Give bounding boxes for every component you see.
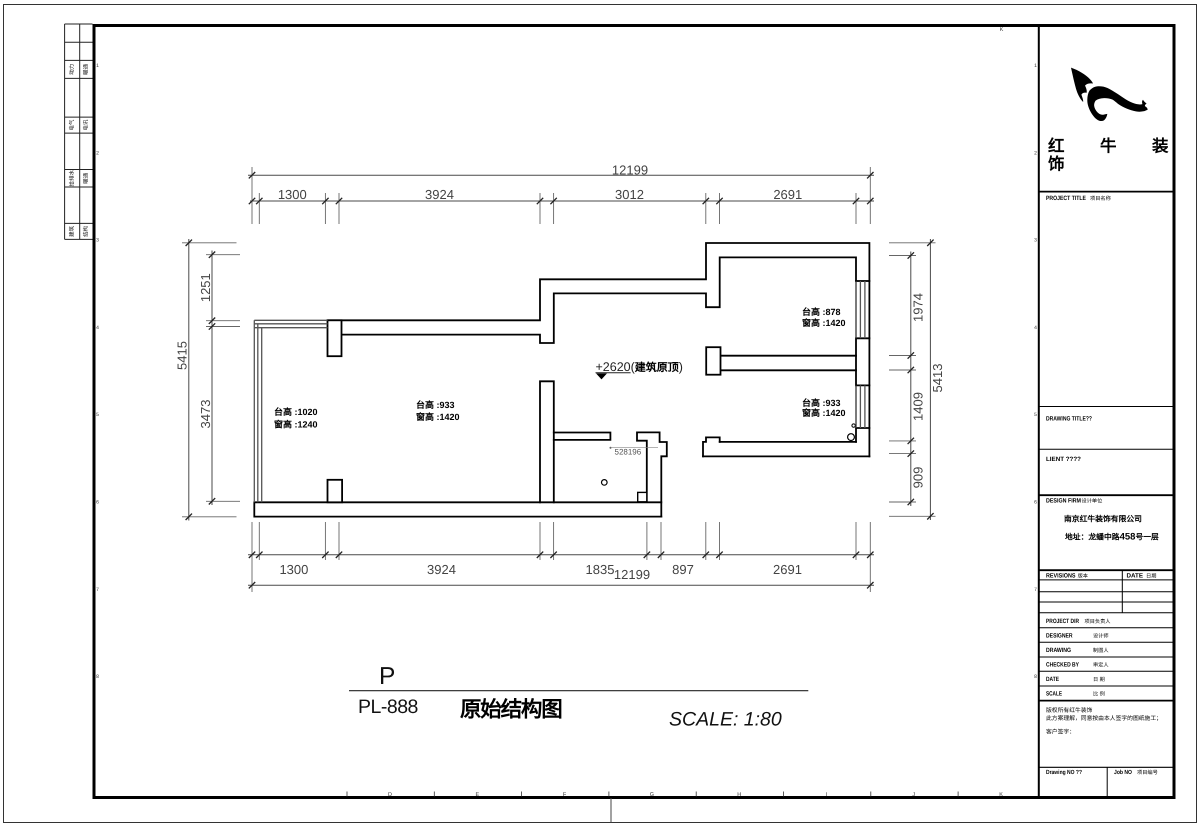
svg-text:DESIGN FIRM: DESIGN FIRM <box>1046 498 1081 505</box>
svg-text:1409: 1409 <box>911 392 926 421</box>
svg-text:饰: 饰 <box>1048 155 1065 174</box>
svg-text:建筑: 建筑 <box>69 225 76 237</box>
svg-text:DESIGNER: DESIGNER <box>1046 632 1073 639</box>
svg-text:台高 :878: 台高 :878 <box>802 307 841 317</box>
svg-text:J: J <box>912 792 915 798</box>
svg-text:红牛装: 红牛装 <box>1048 137 1200 156</box>
svg-text:G: G <box>650 792 654 798</box>
svg-text:DATE: DATE <box>1046 676 1059 683</box>
svg-text:LIENT ????: LIENT ???? <box>1046 456 1081 463</box>
svg-text:比 例: 比 例 <box>1093 691 1105 698</box>
svg-text:5: 5 <box>1034 412 1037 418</box>
svg-text:项目名称: 项目名称 <box>1090 195 1111 202</box>
svg-text:台高 :933: 台高 :933 <box>802 398 841 408</box>
svg-text:电气: 电气 <box>69 119 76 131</box>
svg-text:4: 4 <box>96 325 99 331</box>
svg-text:3924: 3924 <box>427 562 456 577</box>
svg-text:3: 3 <box>1034 238 1037 244</box>
svg-text:客户签字：: 客户签字： <box>1046 729 1075 736</box>
svg-text:设计单位: 设计单位 <box>1082 498 1103 505</box>
svg-text:版本: 版本 <box>1078 572 1088 579</box>
svg-text:528196: 528196 <box>615 448 642 457</box>
svg-text:5413: 5413 <box>930 364 945 393</box>
svg-text:暖通: 暖通 <box>83 63 90 75</box>
svg-text:1: 1 <box>1034 63 1037 69</box>
svg-text:6: 6 <box>96 500 99 506</box>
svg-text:2691: 2691 <box>773 562 802 577</box>
svg-text:D: D <box>388 792 392 798</box>
svg-text:12199: 12199 <box>612 162 648 177</box>
svg-text:12199: 12199 <box>614 567 650 582</box>
svg-text:5415: 5415 <box>175 341 190 370</box>
svg-text:5: 5 <box>96 412 99 418</box>
svg-text:结构: 结构 <box>83 225 90 237</box>
svg-text:项目负责人: 项目负责人 <box>1085 618 1111 625</box>
svg-text:3012: 3012 <box>615 187 644 202</box>
svg-text:动力: 动力 <box>69 64 76 75</box>
svg-text:电讯: 电讯 <box>83 119 90 131</box>
svg-text:版权所有红牛装饰: 版权所有红牛装饰 <box>1046 707 1093 714</box>
svg-text:K: K <box>999 792 1003 798</box>
svg-text:E: E <box>475 792 479 798</box>
svg-text:原始结构图: 原始结构图 <box>460 698 562 722</box>
svg-text:日期: 日期 <box>1146 572 1156 579</box>
svg-text:窗高 :1420: 窗高 :1420 <box>802 318 846 328</box>
svg-text:2: 2 <box>1034 150 1037 156</box>
svg-text:2691: 2691 <box>773 187 802 202</box>
svg-text:SCALE: SCALE <box>1046 691 1062 698</box>
svg-text:DATE: DATE <box>1127 572 1144 579</box>
svg-text:SCALE: 1:80: SCALE: 1:80 <box>669 709 782 731</box>
svg-text:3: 3 <box>96 238 99 244</box>
svg-text:1835: 1835 <box>586 562 615 577</box>
svg-text:审定人: 审定人 <box>1093 662 1109 669</box>
svg-text:Drawing NO ??: Drawing NO ?? <box>1046 769 1082 776</box>
svg-text:此方案理解，同意按由本人签字的图纸施工；: 此方案理解，同意按由本人签字的图纸施工； <box>1046 715 1162 722</box>
svg-text:K: K <box>1000 27 1004 33</box>
svg-text:897: 897 <box>672 562 694 577</box>
svg-text:REVISIONS: REVISIONS <box>1046 572 1076 579</box>
svg-text:给排水: 给排水 <box>69 169 76 186</box>
svg-text:1: 1 <box>96 63 99 69</box>
svg-text:1300: 1300 <box>278 187 307 202</box>
svg-text:CHECKED BY: CHECKED BY <box>1046 662 1080 669</box>
svg-text:8: 8 <box>96 674 99 680</box>
svg-text:909: 909 <box>911 467 926 489</box>
svg-text:PL-888: PL-888 <box>358 696 418 718</box>
svg-text:DRAWING TITLE??: DRAWING TITLE?? <box>1046 416 1092 423</box>
svg-text:8: 8 <box>1034 674 1037 680</box>
svg-text:4: 4 <box>1034 325 1037 331</box>
svg-text:3924: 3924 <box>425 187 454 202</box>
svg-text:1251: 1251 <box>198 273 213 302</box>
svg-text:暖通: 暖通 <box>83 172 90 184</box>
svg-text:2: 2 <box>96 150 99 156</box>
svg-text:7: 7 <box>1034 587 1037 593</box>
svg-text:1974: 1974 <box>911 293 926 322</box>
svg-text:台高 :933: 台高 :933 <box>416 400 455 410</box>
svg-text:窗高 :1420: 窗高 :1420 <box>416 412 460 422</box>
svg-text:地址：龙蟠中路458号一层: 地址：龙蟠中路458号一层 <box>1065 532 1159 543</box>
svg-text:日 期: 日 期 <box>1093 676 1105 683</box>
svg-text:设计师: 设计师 <box>1093 632 1109 639</box>
svg-text:P: P <box>379 663 395 690</box>
svg-text:PROJECT TITLE: PROJECT TITLE <box>1046 195 1086 202</box>
svg-text:项目编号: 项目编号 <box>1137 769 1158 776</box>
svg-text:南京红牛装饰有限公司: 南京红牛装饰有限公司 <box>1064 514 1142 523</box>
svg-text:1300: 1300 <box>279 562 308 577</box>
svg-text:7: 7 <box>96 587 99 593</box>
svg-text:PROJECT DIR: PROJECT DIR <box>1046 618 1079 625</box>
svg-text:+2620(建筑原顶): +2620(建筑原顶) <box>596 360 683 374</box>
svg-text:Job NO: Job NO <box>1114 769 1132 776</box>
svg-text:H: H <box>737 792 741 798</box>
svg-text:3473: 3473 <box>198 400 213 429</box>
svg-text:窗高 :1420: 窗高 :1420 <box>802 408 846 418</box>
svg-text:制图人: 制图人 <box>1093 647 1109 654</box>
svg-text:6: 6 <box>1034 500 1037 506</box>
svg-text:台高 :1020: 台高 :1020 <box>274 407 318 417</box>
svg-text:DRAWING: DRAWING <box>1046 647 1071 654</box>
svg-text:窗高 :1240: 窗高 :1240 <box>274 419 318 429</box>
